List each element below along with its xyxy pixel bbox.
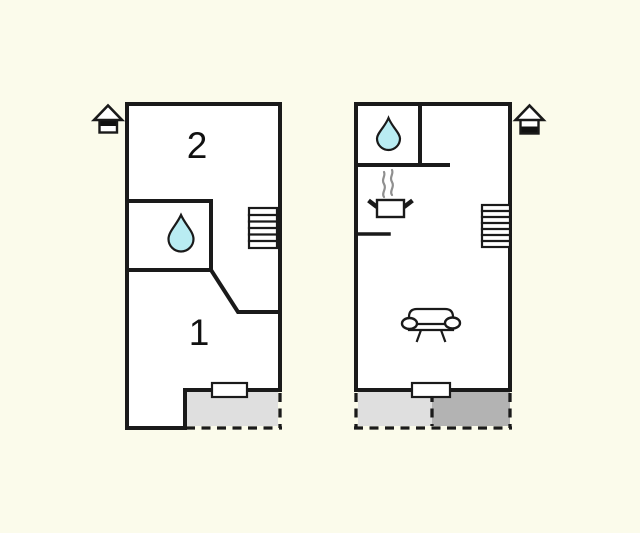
page-background bbox=[0, 0, 640, 533]
room-label-1: 1 bbox=[189, 312, 210, 353]
sofa-arm-left bbox=[402, 318, 417, 329]
sofa-arm-right bbox=[445, 318, 460, 329]
stairs-icon bbox=[249, 208, 277, 248]
stairs-icon bbox=[482, 205, 510, 247]
window-icon bbox=[412, 383, 450, 397]
left-plan-upper-floor: 2 1 bbox=[127, 104, 282, 428]
room-label-2: 2 bbox=[187, 125, 208, 166]
pot-body bbox=[377, 200, 404, 217]
window-icon bbox=[212, 383, 247, 397]
right-plan-ground-floor bbox=[354, 104, 512, 428]
floorplan-image: 2 1 bbox=[0, 0, 640, 533]
floorplan-page: 2 1 bbox=[0, 0, 640, 533]
